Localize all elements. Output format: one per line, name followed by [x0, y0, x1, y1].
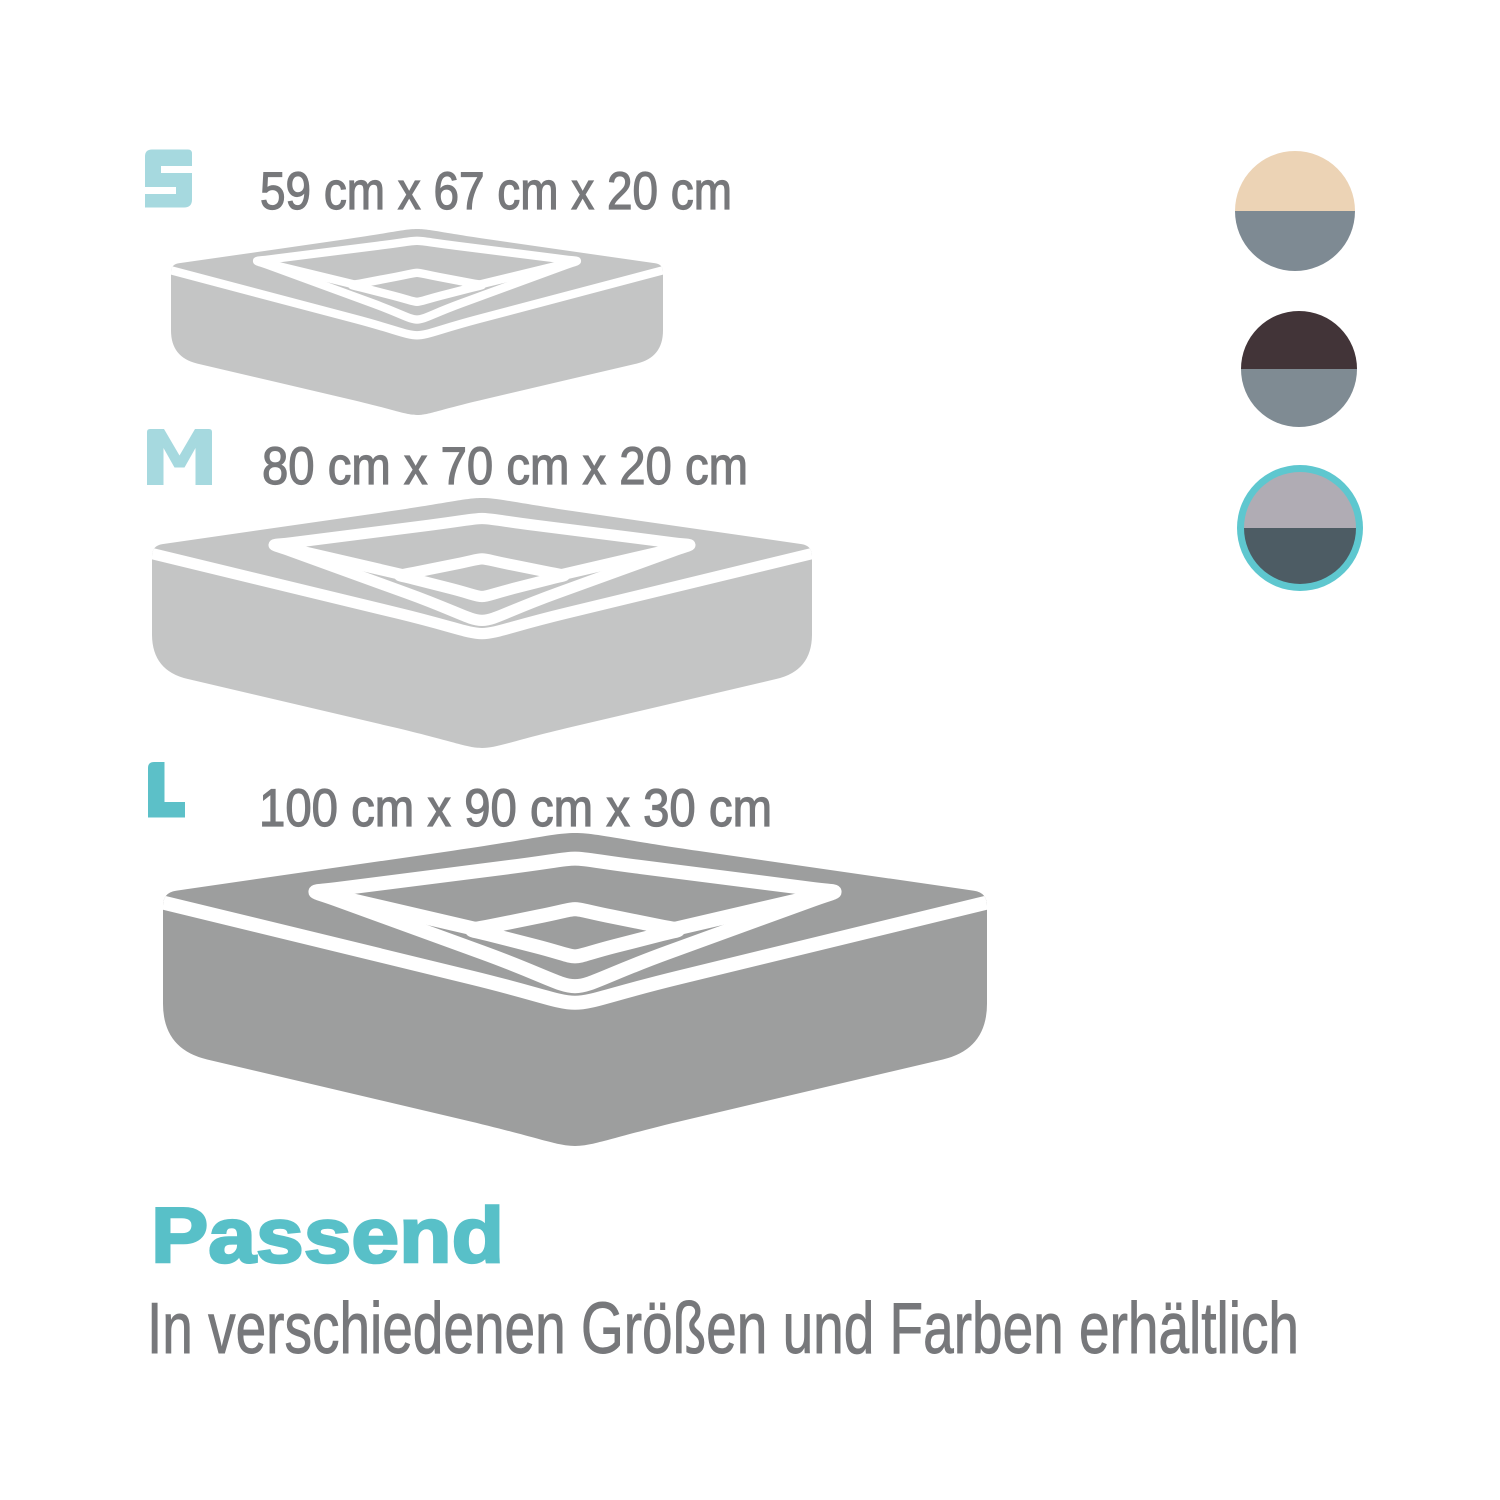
svg-text:100 cm x 90 cm x 30 cm: 100 cm x 90 cm x 30 cm	[259, 779, 772, 838]
svg-text:80 cm x 70 cm x 20 cm: 80 cm x 70 cm x 20 cm	[262, 437, 748, 496]
svg-text:59 cm x 67 cm x 20 cm: 59 cm x 67 cm x 20 cm	[260, 162, 732, 221]
svg-text:In verschiedenen Größen und Fa: In verschiedenen Größen und Farben erhäl…	[147, 1289, 1299, 1369]
svg-text:Passend: Passend	[151, 1191, 504, 1279]
